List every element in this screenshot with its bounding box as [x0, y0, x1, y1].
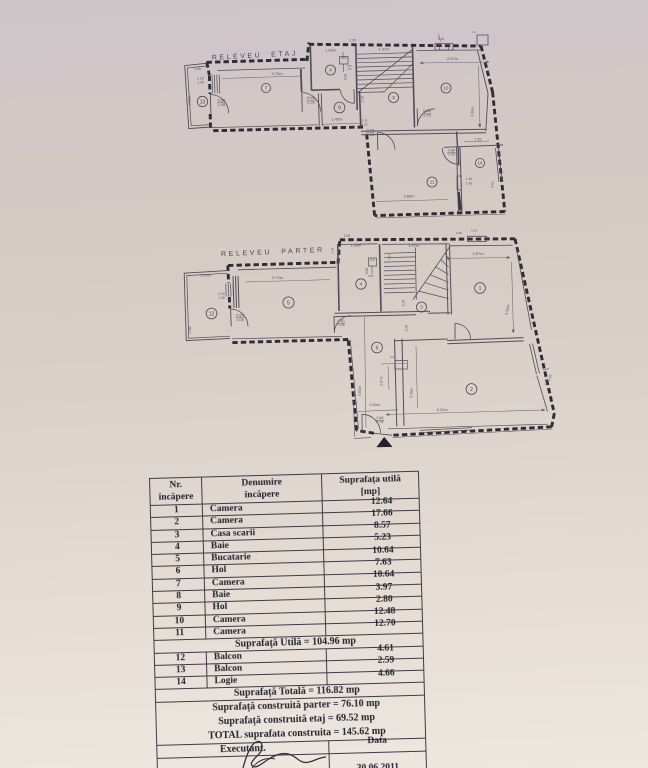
svg-text:1.45: 1.45 — [218, 296, 225, 300]
svg-text:1.45: 1.45 — [466, 182, 472, 186]
svg-text:1.06: 1.06 — [194, 67, 201, 71]
svg-text:1.65m: 1.65m — [351, 243, 362, 248]
svg-text:5: 5 — [287, 300, 290, 306]
svg-text:1.65m: 1.65m — [325, 48, 336, 53]
svg-text:2.05: 2.05 — [338, 323, 345, 327]
svg-text:1.45m: 1.45m — [331, 117, 343, 122]
svg-text:1: 1 — [479, 286, 482, 292]
svg-text:2: 2 — [470, 387, 473, 393]
svg-text:14: 14 — [478, 161, 483, 166]
svg-text:0.85: 0.85 — [218, 98, 227, 103]
svg-text:RELEVEU PARTER: RELEVEU PARTER — [221, 247, 325, 258]
svg-text:0.88: 0.88 — [377, 416, 384, 420]
svg-text:1.06: 1.06 — [405, 325, 409, 331]
svg-text:0.88: 0.88 — [307, 95, 316, 100]
svg-text:0.94: 0.94 — [331, 247, 335, 253]
svg-text:0.60: 0.60 — [456, 231, 462, 235]
svg-text:2.20: 2.20 — [197, 77, 204, 81]
svg-text:3: 3 — [420, 305, 423, 311]
svg-text:0.96: 0.96 — [365, 268, 369, 274]
svg-text:2.20: 2.20 — [218, 292, 225, 296]
svg-text:0.88: 0.88 — [367, 128, 376, 133]
svg-text:2.05: 2.05 — [344, 234, 350, 238]
svg-text:1.45: 1.45 — [197, 81, 204, 85]
svg-text:3.15: 3.15 — [402, 300, 406, 307]
svg-text:0.96: 0.96 — [344, 74, 348, 80]
svg-text:0.94: 0.94 — [341, 52, 345, 58]
svg-text:0.85: 0.85 — [236, 313, 245, 318]
svg-text:1.40: 1.40 — [466, 177, 472, 181]
svg-text:1.35: 1.35 — [475, 138, 482, 142]
svg-text:9: 9 — [338, 105, 341, 111]
svg-text:13: 13 — [200, 99, 206, 105]
svg-text:4.35m: 4.35m — [470, 107, 475, 118]
svg-text:2.05: 2.05 — [362, 123, 368, 127]
svg-text:2.20: 2.20 — [547, 374, 552, 381]
svg-text:2.05: 2.05 — [377, 420, 384, 424]
svg-text:1.97m: 1.97m — [379, 47, 390, 52]
svg-text:7: 7 — [265, 86, 268, 91]
svg-text:2.38m: 2.38m — [188, 95, 192, 106]
svg-text:3.75m: 3.75m — [272, 275, 284, 280]
svg-text:3.15: 3.15 — [361, 96, 365, 103]
svg-text:0.94: 0.94 — [388, 254, 392, 260]
svg-text:0.87m: 0.87m — [380, 376, 384, 385]
svg-text:0.4: 0.4 — [471, 30, 476, 34]
svg-text:1.16: 1.16 — [438, 37, 444, 41]
svg-text:11: 11 — [430, 180, 435, 185]
svg-text:10: 10 — [444, 86, 449, 91]
svg-text:2.35: 2.35 — [362, 119, 368, 123]
svg-text:2.05: 2.05 — [236, 317, 245, 322]
svg-text:RELEVEU ETAJ: RELEVEU ETAJ — [212, 50, 298, 61]
svg-text:4: 4 — [360, 282, 363, 288]
svg-text:2.05: 2.05 — [367, 132, 376, 137]
svg-text:1.59m: 1.59m — [369, 403, 380, 407]
svg-text:3.45: 3.45 — [490, 181, 495, 188]
svg-text:1.45: 1.45 — [543, 378, 548, 385]
svg-text:2.87m: 2.87m — [472, 251, 484, 256]
svg-text:2.05: 2.05 — [218, 102, 227, 107]
svg-text:4.35m: 4.35m — [504, 304, 510, 315]
svg-text:4: 4 — [329, 68, 332, 74]
svg-text:5.01m: 5.01m — [436, 407, 448, 412]
svg-text:0.80: 0.80 — [338, 319, 345, 323]
svg-text:1.60m: 1.60m — [200, 273, 211, 277]
svg-text:3: 3 — [392, 95, 395, 101]
svg-text:2.05: 2.05 — [307, 99, 316, 104]
svg-text:6: 6 — [376, 345, 379, 351]
svg-text:3.68m: 3.68m — [403, 194, 415, 199]
svg-text:2.87m: 2.87m — [447, 56, 459, 61]
svg-text:12: 12 — [209, 311, 215, 317]
svg-text:2.05: 2.05 — [471, 229, 477, 233]
svg-text:2.05: 2.05 — [448, 152, 455, 156]
svg-text:4.65m: 4.65m — [358, 386, 363, 397]
svg-text:0.61: 0.61 — [390, 355, 396, 359]
svg-text:2.05: 2.05 — [423, 112, 432, 117]
svg-text:2.05: 2.05 — [349, 39, 355, 43]
svg-text:2.88: 2.88 — [188, 327, 192, 334]
svg-text:3.75m: 3.75m — [271, 71, 283, 76]
svg-text:3.45m: 3.45m — [409, 388, 414, 399]
svg-text:0.88: 0.88 — [423, 108, 432, 113]
svg-text:0.88: 0.88 — [448, 149, 455, 153]
svg-text:1.97m: 1.97m — [408, 243, 419, 248]
